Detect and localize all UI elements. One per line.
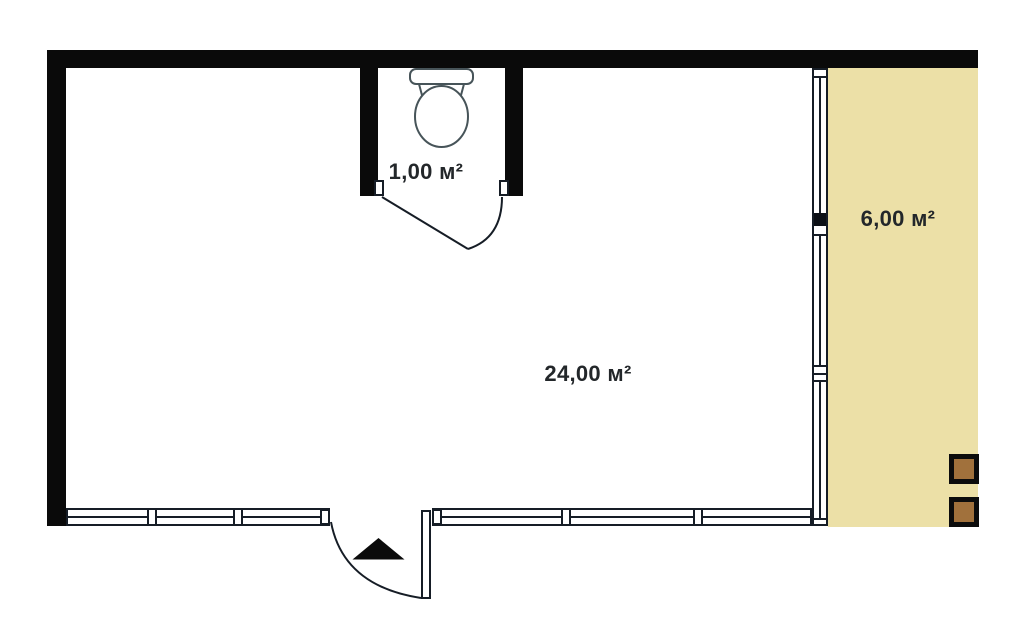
window-band-bottom-left [66,508,330,526]
entrance-door [331,511,430,598]
terrace-post-icon [949,497,979,527]
window-frame-segment [814,226,826,236]
entrance-door-leaf [422,511,430,598]
bathroom-door-leaf [382,197,468,249]
floor-plan: 1,00 м² 24,00 м² 6,00 м² [0,0,1036,631]
window-wall-right [812,68,828,526]
window-mullion-icon [147,510,157,524]
window-band-bottom-right [432,508,812,526]
wall-bathroom-right [505,68,523,196]
toilet-bowl [415,86,468,147]
window-mullion-icon [233,510,243,524]
terrace-post-icon [949,454,979,484]
window-mullion-icon [693,510,703,524]
bathroom-door [382,197,502,249]
entrance-jamb-left [320,509,330,525]
window-mullion-icon [561,510,571,524]
window-mullion-icon [814,365,826,382]
wall-bathroom-left [360,68,378,196]
wall-left [47,50,66,526]
entrance-arrow-icon [353,538,405,560]
window-frame-bottom [814,518,826,524]
toilet-tank [410,69,473,84]
door-swing-arc [468,197,502,249]
window-glazing-line [68,516,328,518]
window-glazing-line [814,373,826,375]
window-glazing-line [819,70,821,524]
entrance-jamb-right [432,509,442,525]
bathroom-area-label: 1,00 м² [389,159,464,185]
window-frame-top [814,70,826,78]
toilet-neck-right [460,84,464,99]
door-swing-arc [331,522,421,598]
bathroom-door-jamb-left [374,180,384,196]
wall-top [47,50,978,68]
toilet-neck-left [419,84,423,99]
terrace-area-label: 6,00 м² [861,206,936,232]
window-glazing-line [434,516,810,518]
bathroom-door-jamb-right [499,180,509,196]
window-mullion-icon [814,213,826,226]
main-room-area-label: 24,00 м² [544,361,631,387]
toilet-icon [410,69,473,147]
